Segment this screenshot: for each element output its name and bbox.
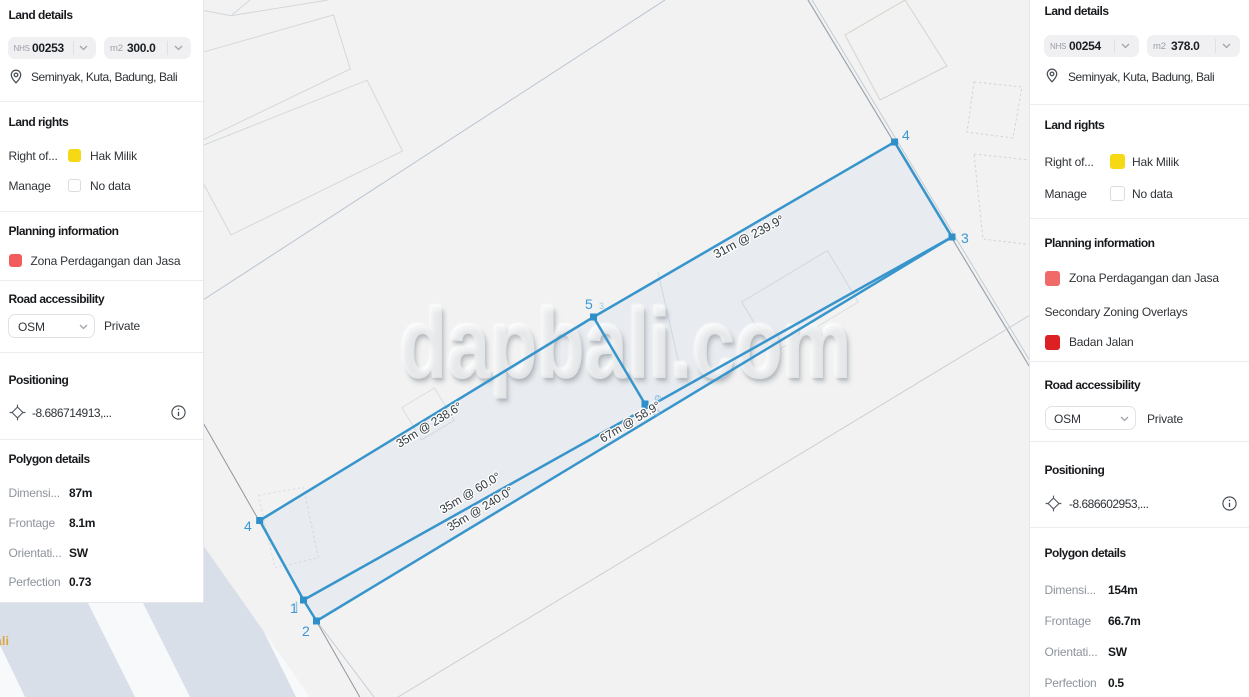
svg-text:4: 4 — [902, 127, 910, 143]
svg-text:4: 4 — [244, 518, 252, 534]
svg-text:67m @ 58.9°: 67m @ 58.9° — [597, 398, 663, 445]
svg-text:31m @ 239.9°: 31m @ 239.9° — [711, 212, 786, 261]
svg-text:5: 5 — [585, 296, 593, 312]
svg-text:3: 3 — [599, 301, 604, 311]
svg-text:2: 2 — [302, 623, 310, 639]
svg-text:35m @ 238.6°: 35m @ 238.6° — [394, 399, 465, 450]
svg-text:3: 3 — [961, 230, 969, 246]
